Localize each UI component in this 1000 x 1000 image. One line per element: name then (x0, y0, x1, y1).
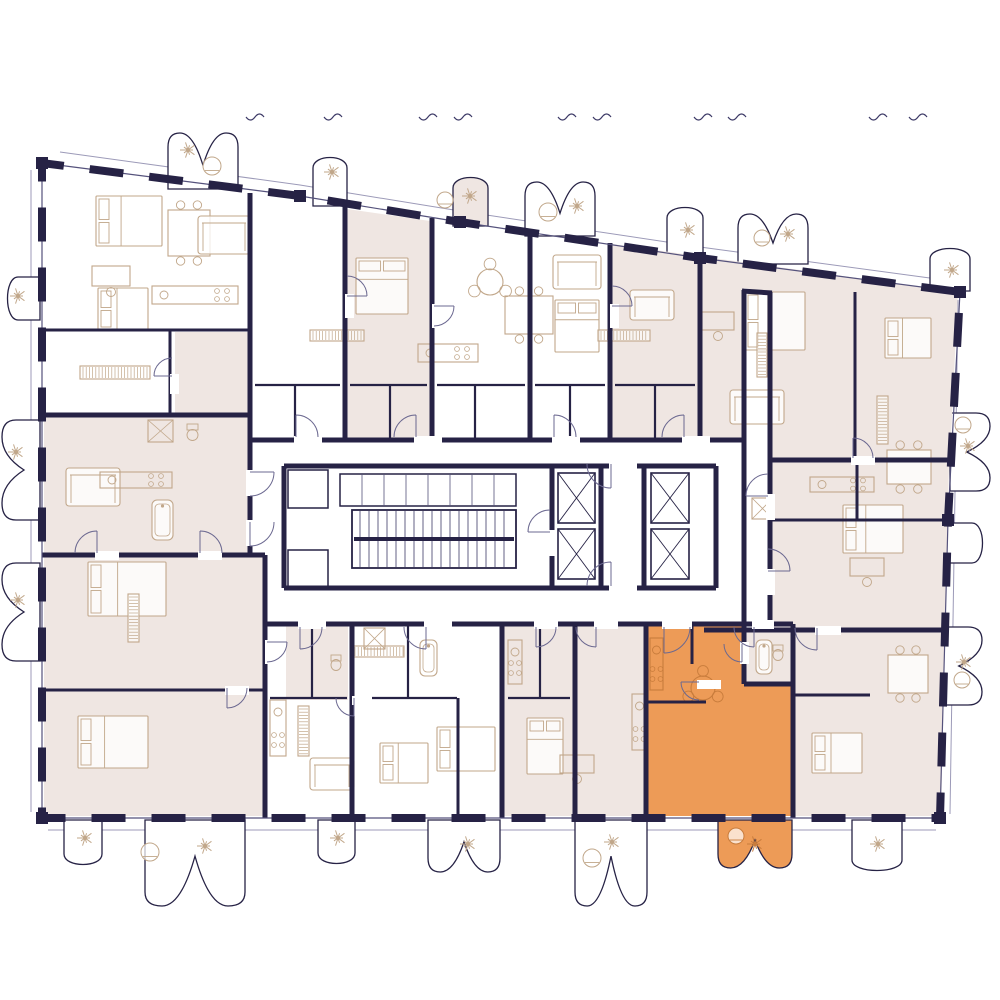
door-opening (170, 374, 179, 394)
wardrobe-icon (877, 396, 888, 444)
armchair-icon (955, 417, 971, 433)
wall-pier (934, 812, 946, 824)
bed-icon (812, 733, 862, 773)
sofa-icon (630, 290, 674, 320)
sofa-icon (198, 216, 250, 254)
wardrobe-icon (757, 333, 767, 377)
balcony (2, 420, 40, 520)
floor-plan-svg (0, 0, 1000, 1000)
wall-pier (36, 812, 48, 824)
door-opening (548, 530, 557, 556)
bed-icon (843, 505, 903, 553)
bed-icon (88, 562, 166, 616)
door-swing (296, 415, 318, 437)
bed-icon (437, 727, 495, 771)
door-opening (682, 436, 710, 445)
tick-mark (246, 114, 264, 120)
door-opening (610, 304, 619, 328)
door-opening (815, 626, 841, 635)
balcony (946, 523, 983, 563)
sofa-icon (730, 390, 784, 424)
balcony (8, 277, 41, 320)
sofa-icon (310, 758, 354, 790)
tick-mark (869, 114, 887, 120)
wall-pier (694, 252, 706, 264)
sofa-icon (66, 468, 120, 506)
staircase (352, 510, 516, 568)
door-opening (345, 294, 354, 318)
bed-icon (745, 292, 805, 350)
balcony (525, 182, 595, 236)
elevator-icon (558, 529, 595, 579)
bed-icon (96, 196, 162, 246)
armchair-icon (583, 849, 601, 867)
bed-icon (527, 718, 563, 774)
door-opening (225, 686, 249, 695)
tick-mark (454, 114, 472, 120)
door-opening (95, 551, 119, 560)
door-swing (554, 415, 576, 437)
armchair-icon (539, 203, 557, 221)
armchair-icon (437, 192, 453, 208)
door-opening (294, 436, 322, 445)
armchair-icon (203, 157, 221, 175)
elevator-icon (651, 473, 689, 523)
wall-pier (294, 190, 306, 202)
door-opening (662, 620, 692, 629)
door-opening (265, 640, 274, 664)
wardrobe-icon (128, 594, 139, 642)
tick-mark (728, 114, 746, 120)
balcony (738, 214, 808, 264)
door-opening (414, 436, 442, 445)
door-opening (534, 620, 558, 629)
wardrobe-icon (352, 646, 404, 657)
door-opening (609, 462, 637, 471)
kitchen-counter-icon (152, 286, 238, 304)
balcony (64, 820, 102, 865)
balcony (2, 563, 40, 661)
wardrobe-icon (598, 330, 650, 341)
floor-plan (0, 0, 1000, 1000)
bed-icon (555, 300, 599, 352)
wall-pier (942, 514, 954, 526)
wall-pier (954, 286, 966, 298)
wardrobe-icon (80, 366, 150, 379)
tick-mark (694, 114, 712, 120)
tick-mark (593, 114, 611, 120)
wall-pier (454, 216, 466, 228)
bathtub-icon (756, 640, 772, 674)
armchair-icon (728, 828, 744, 844)
door-opening (752, 620, 774, 629)
door-swing (746, 474, 768, 496)
wall-pier (36, 157, 48, 169)
tick-mark (324, 114, 342, 120)
balcony (428, 820, 500, 872)
door-opening (851, 456, 875, 465)
door-opening (352, 696, 372, 705)
elevator-icon (558, 473, 595, 523)
apartment-region[interactable] (347, 209, 430, 438)
bathtub-icon (420, 640, 437, 676)
door-opening (432, 304, 441, 328)
sofa-icon (553, 255, 601, 289)
apartment-region[interactable] (175, 332, 248, 417)
door-opening (424, 620, 452, 629)
door-opening (246, 470, 255, 496)
door-opening (697, 680, 721, 689)
door-opening (766, 569, 775, 595)
bathtub-icon (152, 500, 173, 540)
apartment-region[interactable] (286, 626, 348, 700)
bed-icon (98, 288, 148, 330)
door-opening (609, 584, 637, 593)
bed-icon (78, 716, 148, 768)
wardrobe-icon (298, 706, 309, 756)
balcony (145, 820, 245, 906)
armchair-icon (141, 843, 159, 861)
tick-mark (419, 114, 437, 120)
tick-mark (558, 114, 576, 120)
armchair-icon (754, 230, 770, 246)
door-opening (594, 620, 618, 629)
kitchen-counter-icon (270, 700, 286, 756)
bed-icon (885, 318, 931, 358)
elevator-icon (651, 529, 689, 579)
tick-mark (909, 114, 927, 120)
door-opening (198, 551, 222, 560)
dimension-ticks (246, 114, 927, 120)
door-opening (766, 494, 775, 520)
door-opening (740, 642, 749, 664)
wardrobe-icon (310, 330, 364, 341)
armchair-icon (954, 672, 970, 688)
round-table-icon (469, 258, 512, 297)
door-opening (552, 436, 580, 445)
bed-icon (380, 743, 428, 783)
